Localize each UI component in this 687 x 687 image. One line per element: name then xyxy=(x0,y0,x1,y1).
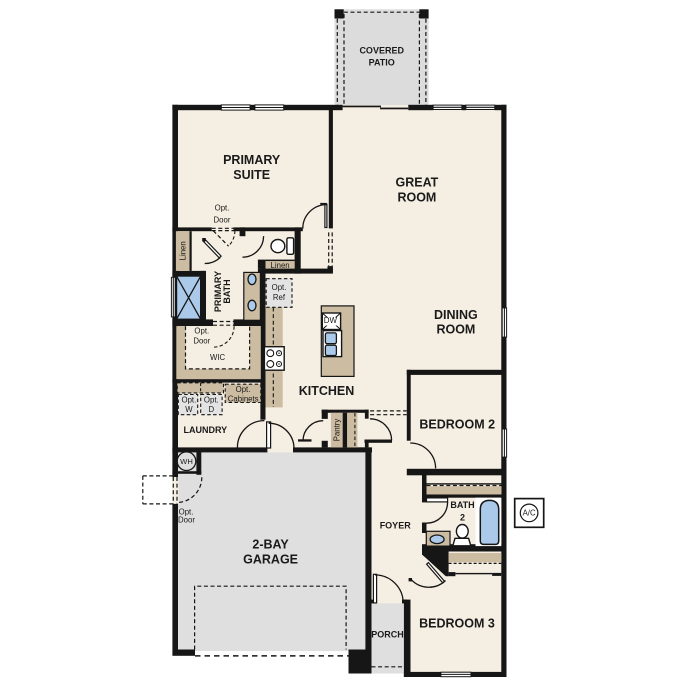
svg-text:GREAT: GREAT xyxy=(395,176,438,190)
svg-text:PATIO: PATIO xyxy=(369,57,395,67)
svg-text:Linen: Linen xyxy=(271,261,290,270)
svg-text:ROOM: ROOM xyxy=(397,190,436,204)
svg-text:COVERED: COVERED xyxy=(359,46,404,56)
svg-text:GARAGE: GARAGE xyxy=(243,552,298,566)
svg-text:WIC: WIC xyxy=(210,353,226,362)
svg-text:D: D xyxy=(208,405,214,414)
svg-text:Opt.: Opt. xyxy=(236,385,251,394)
svg-text:BATH: BATH xyxy=(450,500,474,510)
svg-text:Opt.: Opt. xyxy=(204,395,219,404)
svg-text:Cabinets: Cabinets xyxy=(228,395,259,404)
svg-text:Opt.: Opt. xyxy=(194,327,209,336)
svg-text:WH: WH xyxy=(180,457,193,466)
svg-text:Door: Door xyxy=(214,216,231,225)
svg-text:Pantry: Pantry xyxy=(333,419,342,442)
svg-text:A/C: A/C xyxy=(523,509,536,518)
svg-text:BEDROOM 3: BEDROOM 3 xyxy=(419,616,495,630)
svg-text:DW: DW xyxy=(324,316,338,325)
svg-text:2-BAY: 2-BAY xyxy=(252,538,289,552)
svg-text:Opt.: Opt. xyxy=(272,283,287,292)
svg-text:PRIMARY: PRIMARY xyxy=(223,153,281,167)
svg-text:DINING: DINING xyxy=(434,308,478,322)
svg-text:Linen: Linen xyxy=(179,241,188,260)
svg-text:SUITE: SUITE xyxy=(233,168,270,182)
svg-text:LAUNDRY: LAUNDRY xyxy=(183,425,227,435)
svg-text:BEDROOM 2: BEDROOM 2 xyxy=(419,418,495,432)
svg-text:Opt.: Opt. xyxy=(215,204,230,213)
svg-text:ROOM: ROOM xyxy=(436,322,475,336)
svg-text:BATH: BATH xyxy=(222,279,232,303)
svg-text:PORCH: PORCH xyxy=(371,630,404,640)
svg-text:Door: Door xyxy=(193,337,210,346)
svg-text:W: W xyxy=(185,405,193,414)
svg-text:Opt.: Opt. xyxy=(182,395,197,404)
svg-text:Ref: Ref xyxy=(273,293,286,302)
svg-text:Door: Door xyxy=(178,516,195,525)
svg-text:2: 2 xyxy=(460,512,465,522)
svg-text:FOYER: FOYER xyxy=(380,521,412,531)
svg-text:KITCHEN: KITCHEN xyxy=(299,384,355,398)
